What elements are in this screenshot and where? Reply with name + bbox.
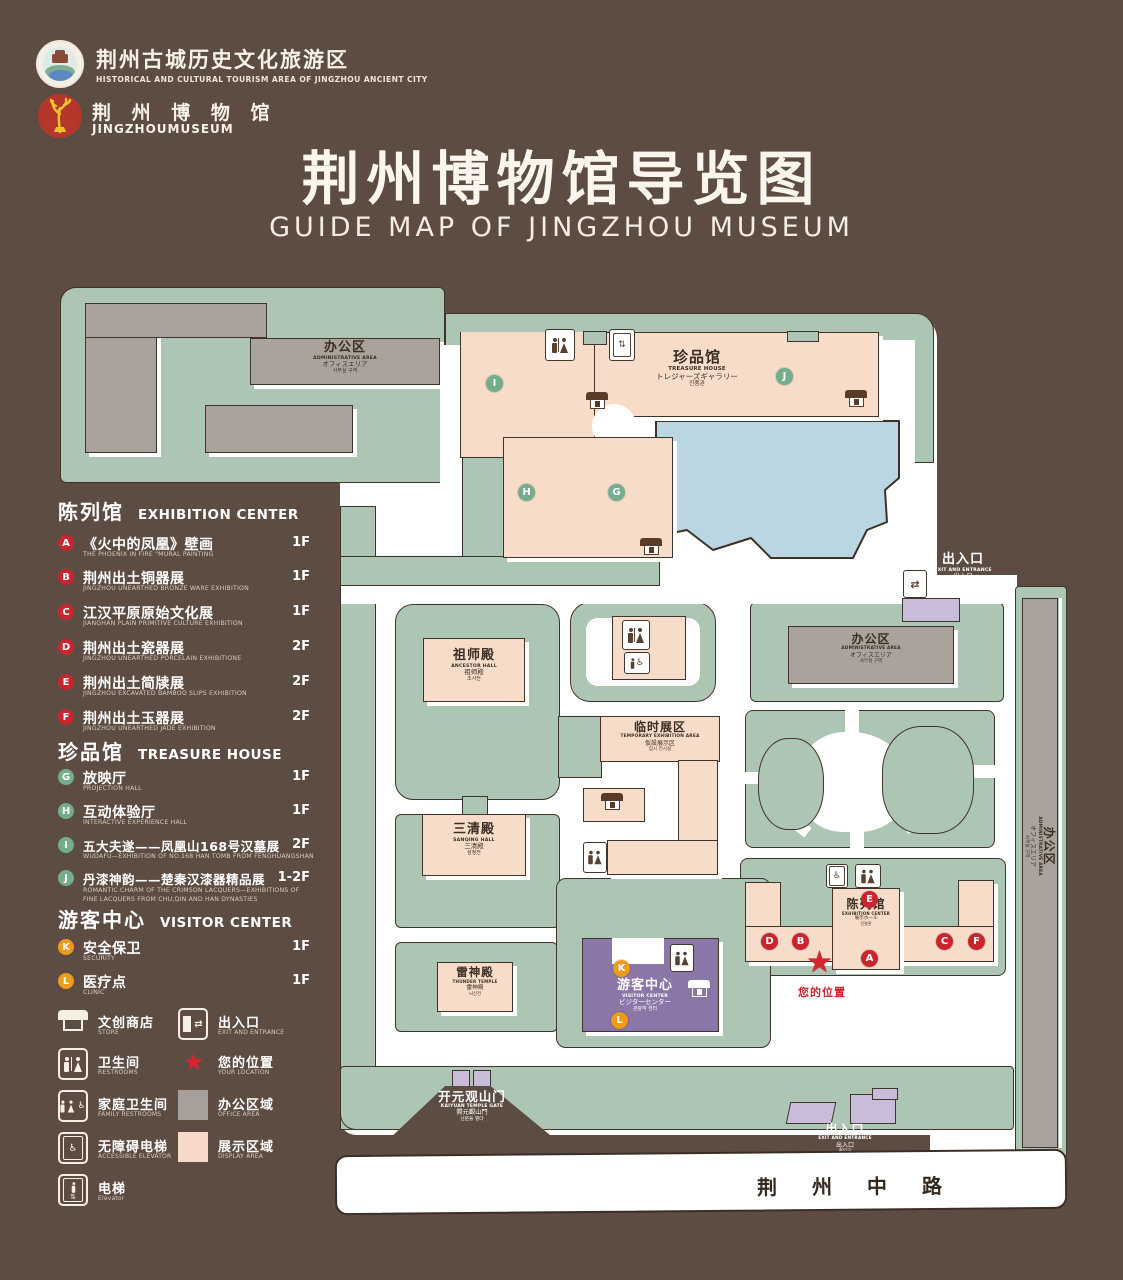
- gate-kiosk: [473, 1070, 491, 1087]
- restroom-icon: [622, 620, 650, 650]
- legend-section-treasure: 珍品馆TREASURE HOUSE: [58, 736, 282, 765]
- legend-item-e: E 荆州出土简牍展 JINGZHOU EXCAVATED BAMBOO SLIP…: [58, 673, 310, 707]
- marker-k: K: [58, 939, 74, 955]
- marker-h: H: [58, 803, 74, 819]
- legend-item-b: B 荆州出土铜器展 JINGZHOU UNEARTHED BRONZE WARE…: [58, 568, 310, 602]
- museum-guide-map-poster: 荆州古城历史文化旅游区 HISTORICAL AND CULTURAL TOUR…: [0, 0, 1123, 1280]
- legend-item-d: D 荆州出土瓷器展 JINGZHOU UNEARTHED PORCELAIN E…: [58, 638, 310, 672]
- your-location-star-icon: ★: [806, 948, 833, 978]
- family-restroom-icon: ♿: [624, 652, 650, 674]
- map-marker-g: G: [608, 484, 625, 501]
- marker-f: F: [58, 709, 74, 725]
- map-marker-a: A: [861, 950, 878, 967]
- map-marker-c: C: [936, 933, 953, 950]
- elevator-icon: ⇅: [609, 329, 635, 361]
- marker-l: L: [58, 973, 74, 989]
- tourism-area-name: 荆州古城历史文化旅游区: [96, 44, 349, 74]
- legend-item-i: I 五大夫遂——凤凰山168号汉墓展 WUDAFU—EXHIBITION OF …: [58, 836, 310, 870]
- label-admin-east: 办公区ADMINISTRATIVE AREA オフィスエリア사무실 구역: [1024, 816, 1056, 875]
- label-gate: 开元观山门KAIYUAN TEMPLE GATE 開元觀山門산문을 열다: [438, 1089, 506, 1123]
- restroom-icon: [855, 864, 881, 888]
- garden-lobe-east: [882, 726, 974, 834]
- map-marker-i: I: [486, 375, 503, 392]
- marker-d: D: [58, 639, 74, 655]
- restroom-icon: [545, 329, 575, 361]
- page-title-en: GUIDE MAP OF JINGZHOU MUSEUM: [0, 212, 1123, 243]
- marker-c: C: [58, 604, 74, 620]
- store-icon: [640, 538, 662, 555]
- page-title: 荆州博物馆导览图: [0, 132, 1123, 216]
- accessible-elevator-icon: ♿: [826, 864, 848, 888]
- store-icon: [601, 793, 623, 810]
- lawn-ancestor: [395, 604, 560, 800]
- display-area-swatch: [178, 1132, 208, 1162]
- lawn-connector: [462, 796, 488, 816]
- office-area-swatch: [178, 1090, 208, 1120]
- map-marker-d: D: [761, 933, 778, 950]
- map-marker-j: J: [776, 368, 793, 385]
- label-admin-mid: 办公区ADMINISTRATIVE AREA オフィスエリア사무실 구역: [841, 632, 900, 664]
- store-icon: [845, 390, 867, 407]
- road-label: 荆 州 中 路: [757, 1170, 956, 1201]
- restroom-icon: [583, 842, 607, 873]
- label-sanqing: 三清殿SANQING HALL 三清殿삼청전: [453, 822, 495, 857]
- map-marker-f: F: [968, 933, 985, 950]
- marker-g: G: [58, 769, 74, 785]
- store-icon: [58, 1010, 88, 1031]
- map-marker-h: H: [518, 484, 535, 501]
- tourism-area-name-en: HISTORICAL AND CULTURAL TOURISM AREA OF …: [96, 75, 428, 84]
- legend-item-a: A 《火中的凤凰》壁画 THE PHOENIX IN FIRE "MURAL P…: [58, 534, 310, 568]
- accessible-elevator-icon: ♿: [58, 1132, 88, 1164]
- lawn-temp-west: [558, 716, 602, 778]
- family-restroom-icon: ♿: [58, 1090, 88, 1122]
- gate-kiosk: [452, 1070, 470, 1087]
- label-admin-nw: 办公区ADMINISTRATIVE AREA オフィスエリア사무실 구역: [313, 340, 377, 375]
- legend-item-c: C 江汉平原原始文化展 JIANGHAN PLAIN PRIMITIVE CUL…: [58, 603, 310, 637]
- legend-item-k: K 安全保卫 SECURITY 1F: [58, 938, 310, 972]
- label-exit-ne: 出入口EXIT AND ENTRANCE 出入口출입구: [934, 552, 992, 587]
- exit-icon: ⇄: [903, 570, 927, 598]
- marker-i: I: [58, 837, 74, 853]
- museum-name: 荆 州 博 物 馆: [92, 98, 276, 125]
- legend-section-visitor: 游客中心VISITOR CENTER: [58, 904, 292, 933]
- legend-item-l: L 医疗点 CLINIC 1F: [58, 972, 310, 1006]
- map-marker-e: E: [861, 891, 878, 908]
- your-location-text: 您的位置: [798, 984, 846, 1000]
- exit-icon: ⇄: [178, 1008, 208, 1040]
- road: 荆 州 中 路: [335, 1149, 1067, 1215]
- legend-item-h: H 互动体验厅 INTERACTIVE EXPERIENCE HALL 1F: [58, 802, 310, 836]
- marker-b: B: [58, 569, 74, 585]
- restroom-icon: [670, 944, 694, 972]
- your-location-icon: ★: [183, 1048, 205, 1076]
- garden-lobe-west: [758, 738, 824, 830]
- building-exit-ne: [902, 598, 960, 622]
- map-marker-l: L: [611, 1012, 628, 1029]
- restrooms-icon: [58, 1048, 88, 1080]
- label-exit-s: 出入口EXIT AND ENTRANCE 出入口출입구: [818, 1122, 872, 1154]
- pond: [653, 418, 903, 568]
- map-marker-k: K: [613, 960, 630, 977]
- marker-a: A: [58, 535, 74, 551]
- elevator-icon: ⇅: [58, 1174, 88, 1206]
- label-visitor-center: 游客中心VISITOR CENTER ビジターセンター관광객 센터: [617, 978, 673, 1013]
- store-icon: [586, 392, 608, 409]
- label-thunder: 雷神殿THUNDER TEMPLE 雷神殿뇌신전: [453, 966, 498, 997]
- marker-j: J: [58, 870, 74, 886]
- lawn-band-south-of-treasure: [340, 556, 660, 586]
- legend-section-exhibition: 陈列馆EXHIBITION CENTER: [58, 496, 299, 525]
- label-ancestor: 祖师殿ANCESTOR HALL 祖师殿조사전: [451, 648, 497, 683]
- tourism-area-logo-icon: [36, 40, 84, 88]
- marker-e: E: [58, 674, 74, 690]
- legend-item-g: G 放映厅 PROJECTION HALL 1F: [58, 768, 310, 802]
- store-icon: [688, 980, 710, 997]
- building-exit-s: [786, 1102, 837, 1124]
- label-temp-exhibition: 临时展区TEMPORARY EXHIBITION AREA 仮設展示区임시 전시…: [620, 720, 699, 752]
- label-treasure: 珍品馆TREASURE HOUSE トレジャーズギャラリー진품관: [656, 348, 738, 388]
